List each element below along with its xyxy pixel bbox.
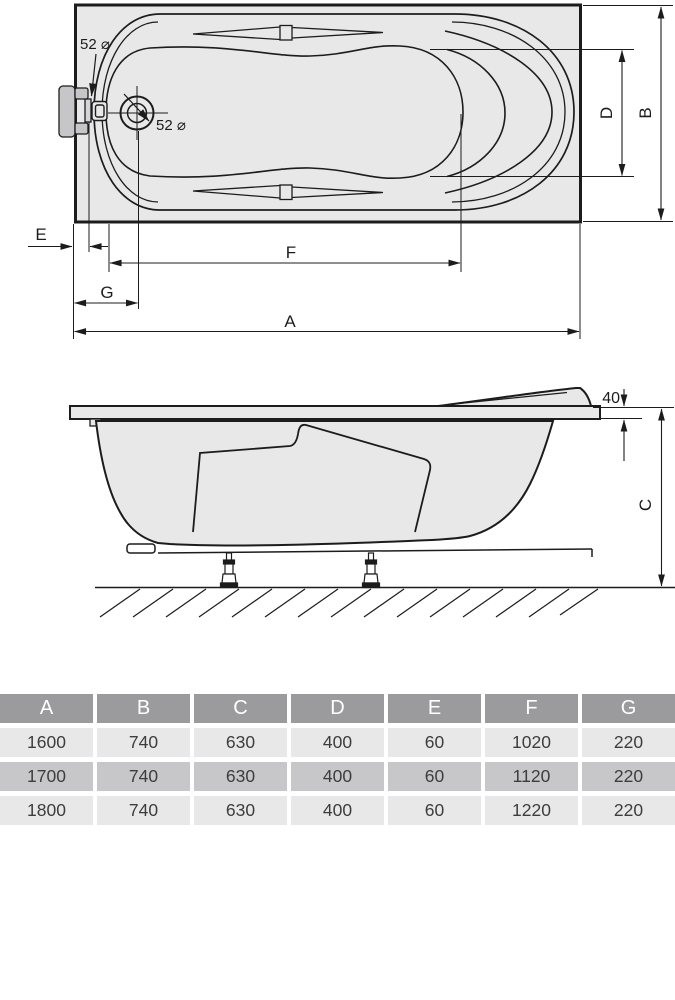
side-view: 40 C <box>70 388 675 617</box>
table-cell: 630 <box>194 796 287 825</box>
waste-fitting <box>127 544 155 553</box>
overflow-fitting <box>59 86 91 137</box>
table-header-b: B <box>97 694 190 723</box>
technical-drawing-page: 52 ⌀ 52 ⌀ E F G A D B <box>0 0 675 1000</box>
table-cell: 1220 <box>485 796 578 825</box>
tub-body <box>96 421 553 545</box>
table-cell: 220 <box>582 728 675 757</box>
table-header-a: A <box>0 694 93 723</box>
rim-slab <box>70 406 600 419</box>
table-header-e: E <box>388 694 481 723</box>
dim-g-label: G <box>100 283 113 302</box>
table-cell: 220 <box>582 796 675 825</box>
table-cell: 740 <box>97 762 190 791</box>
plan-view: 52 ⌀ 52 ⌀ E F G A D B <box>28 5 673 339</box>
dim-a-label: A <box>284 312 296 331</box>
table-cell: 400 <box>291 762 384 791</box>
table-cell: 1020 <box>485 728 578 757</box>
table-header-c: C <box>194 694 287 723</box>
table-cell: 220 <box>582 762 675 791</box>
overflow-hole-icon <box>92 102 107 121</box>
dim-e-label: E <box>35 225 46 244</box>
table-cell: 60 <box>388 762 481 791</box>
table-cell: 60 <box>388 796 481 825</box>
table-cell: 630 <box>194 762 287 791</box>
table-header-d: D <box>291 694 384 723</box>
bathtub-dimension-drawing: 52 ⌀ 52 ⌀ E F G A D B <box>0 0 675 690</box>
table-cell: 1120 <box>485 762 578 791</box>
dim-f-label: F <box>286 243 296 262</box>
table-cell: 740 <box>97 796 190 825</box>
table-cell: 400 <box>291 728 384 757</box>
adjustable-foot-right <box>363 553 380 588</box>
table-cell: 1700 <box>0 762 93 791</box>
dimension-spec-table: ABCDEFG160074063040060102022017007406304… <box>0 694 675 825</box>
table-cell: 1600 <box>0 728 93 757</box>
table-cell: 400 <box>291 796 384 825</box>
dim-c-label: C <box>636 499 655 511</box>
support-frame <box>158 549 592 557</box>
adjustable-foot-left <box>221 553 238 588</box>
overflow-diameter-label: 52 ⌀ <box>80 36 110 53</box>
table-cell: 1800 <box>0 796 93 825</box>
table-header-f: F <box>485 694 578 723</box>
ground-hatching <box>95 588 675 618</box>
rim-thickness-label: 40 <box>602 390 620 407</box>
table-cell: 60 <box>388 728 481 757</box>
dim-b-label: B <box>636 107 655 118</box>
dim-d-label: D <box>597 107 616 119</box>
table-cell: 740 <box>97 728 190 757</box>
drain-diameter-label: 52 ⌀ <box>156 117 186 134</box>
table-cell: 630 <box>194 728 287 757</box>
table-header-g: G <box>582 694 675 723</box>
